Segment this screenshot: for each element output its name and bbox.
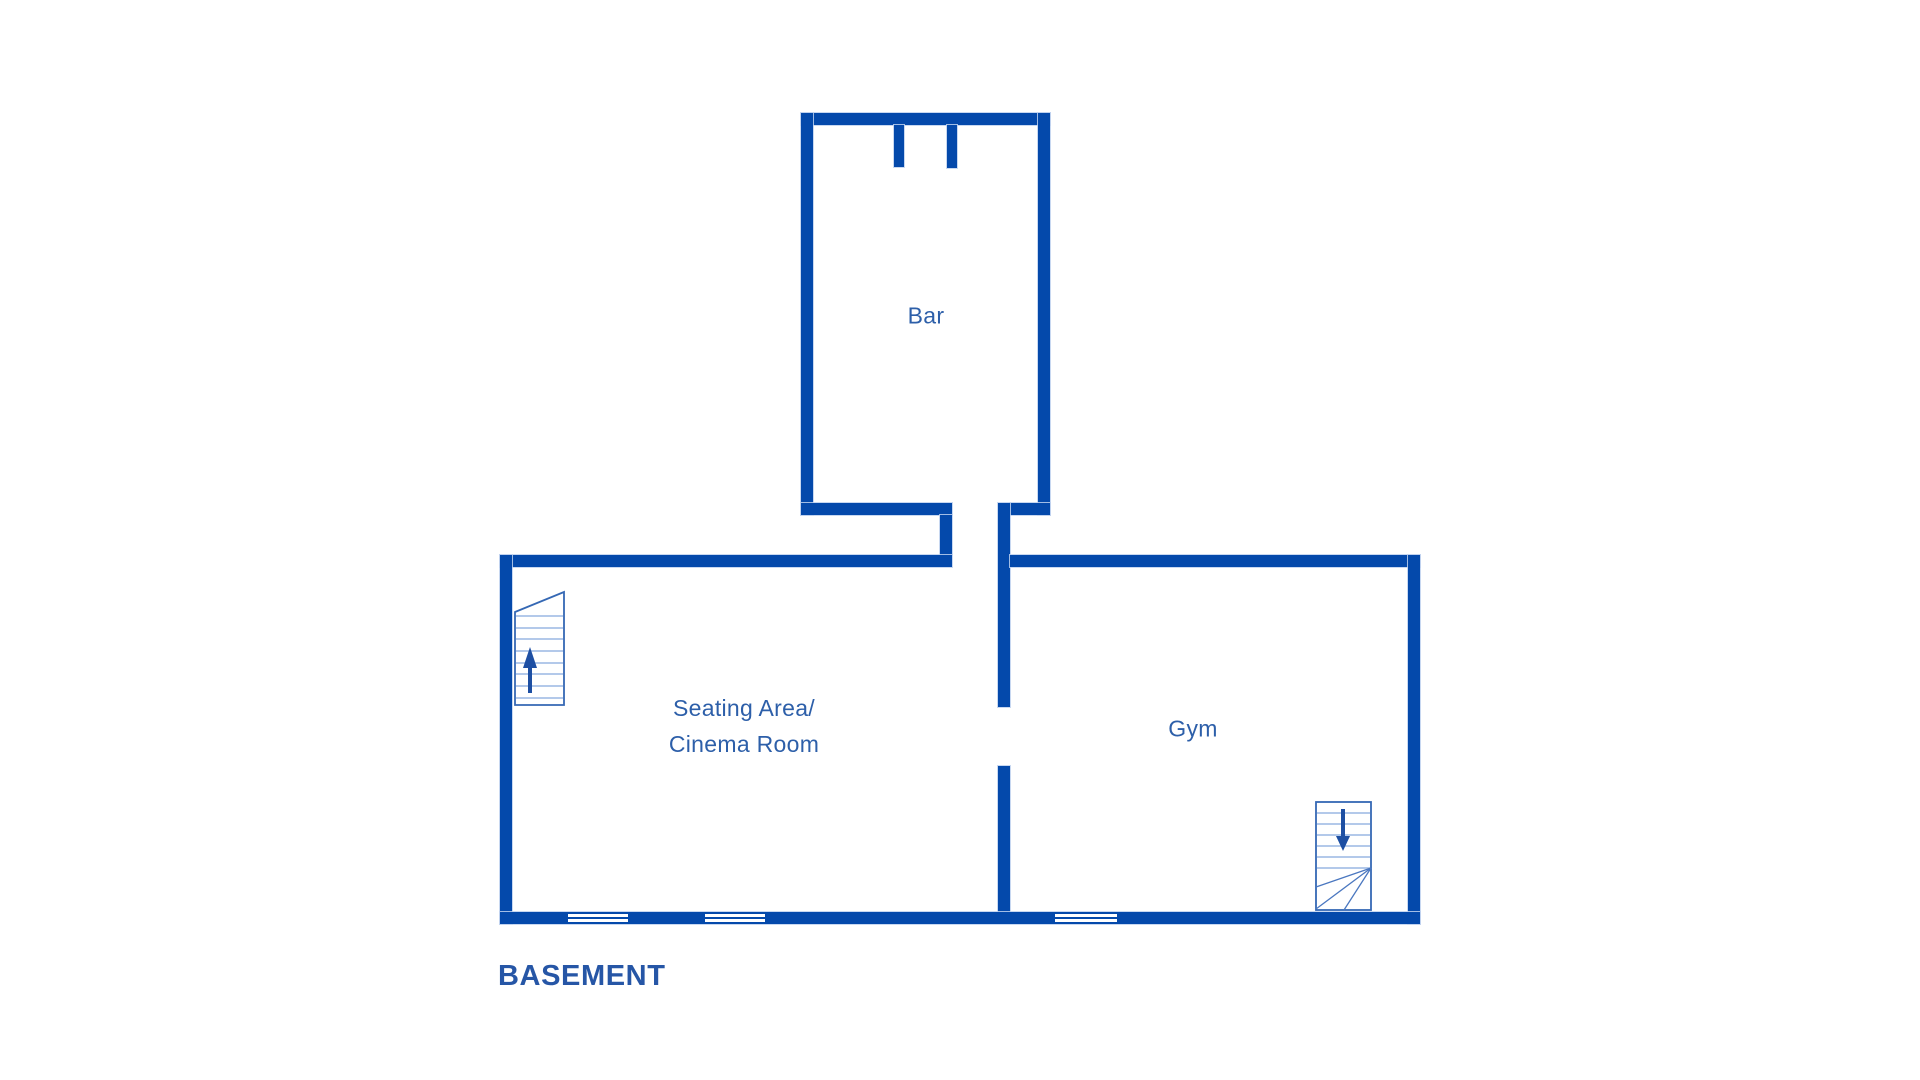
room-label-gym: Gym bbox=[1168, 716, 1217, 743]
stairs-overlay bbox=[0, 0, 1920, 1080]
floor-title: BASEMENT bbox=[498, 960, 666, 993]
room-label-seating-line1: Seating Area/ bbox=[669, 690, 819, 726]
room-label-seating-line2: Cinema Room bbox=[669, 726, 819, 762]
floor-plan-basement: Bar Seating Area/ Cinema Room Gym BASEME… bbox=[0, 0, 1920, 1080]
room-label-seating: Seating Area/ Cinema Room bbox=[669, 690, 819, 762]
staircase-up bbox=[515, 592, 564, 705]
staircase-down bbox=[1316, 802, 1371, 910]
room-label-bar: Bar bbox=[908, 303, 945, 330]
